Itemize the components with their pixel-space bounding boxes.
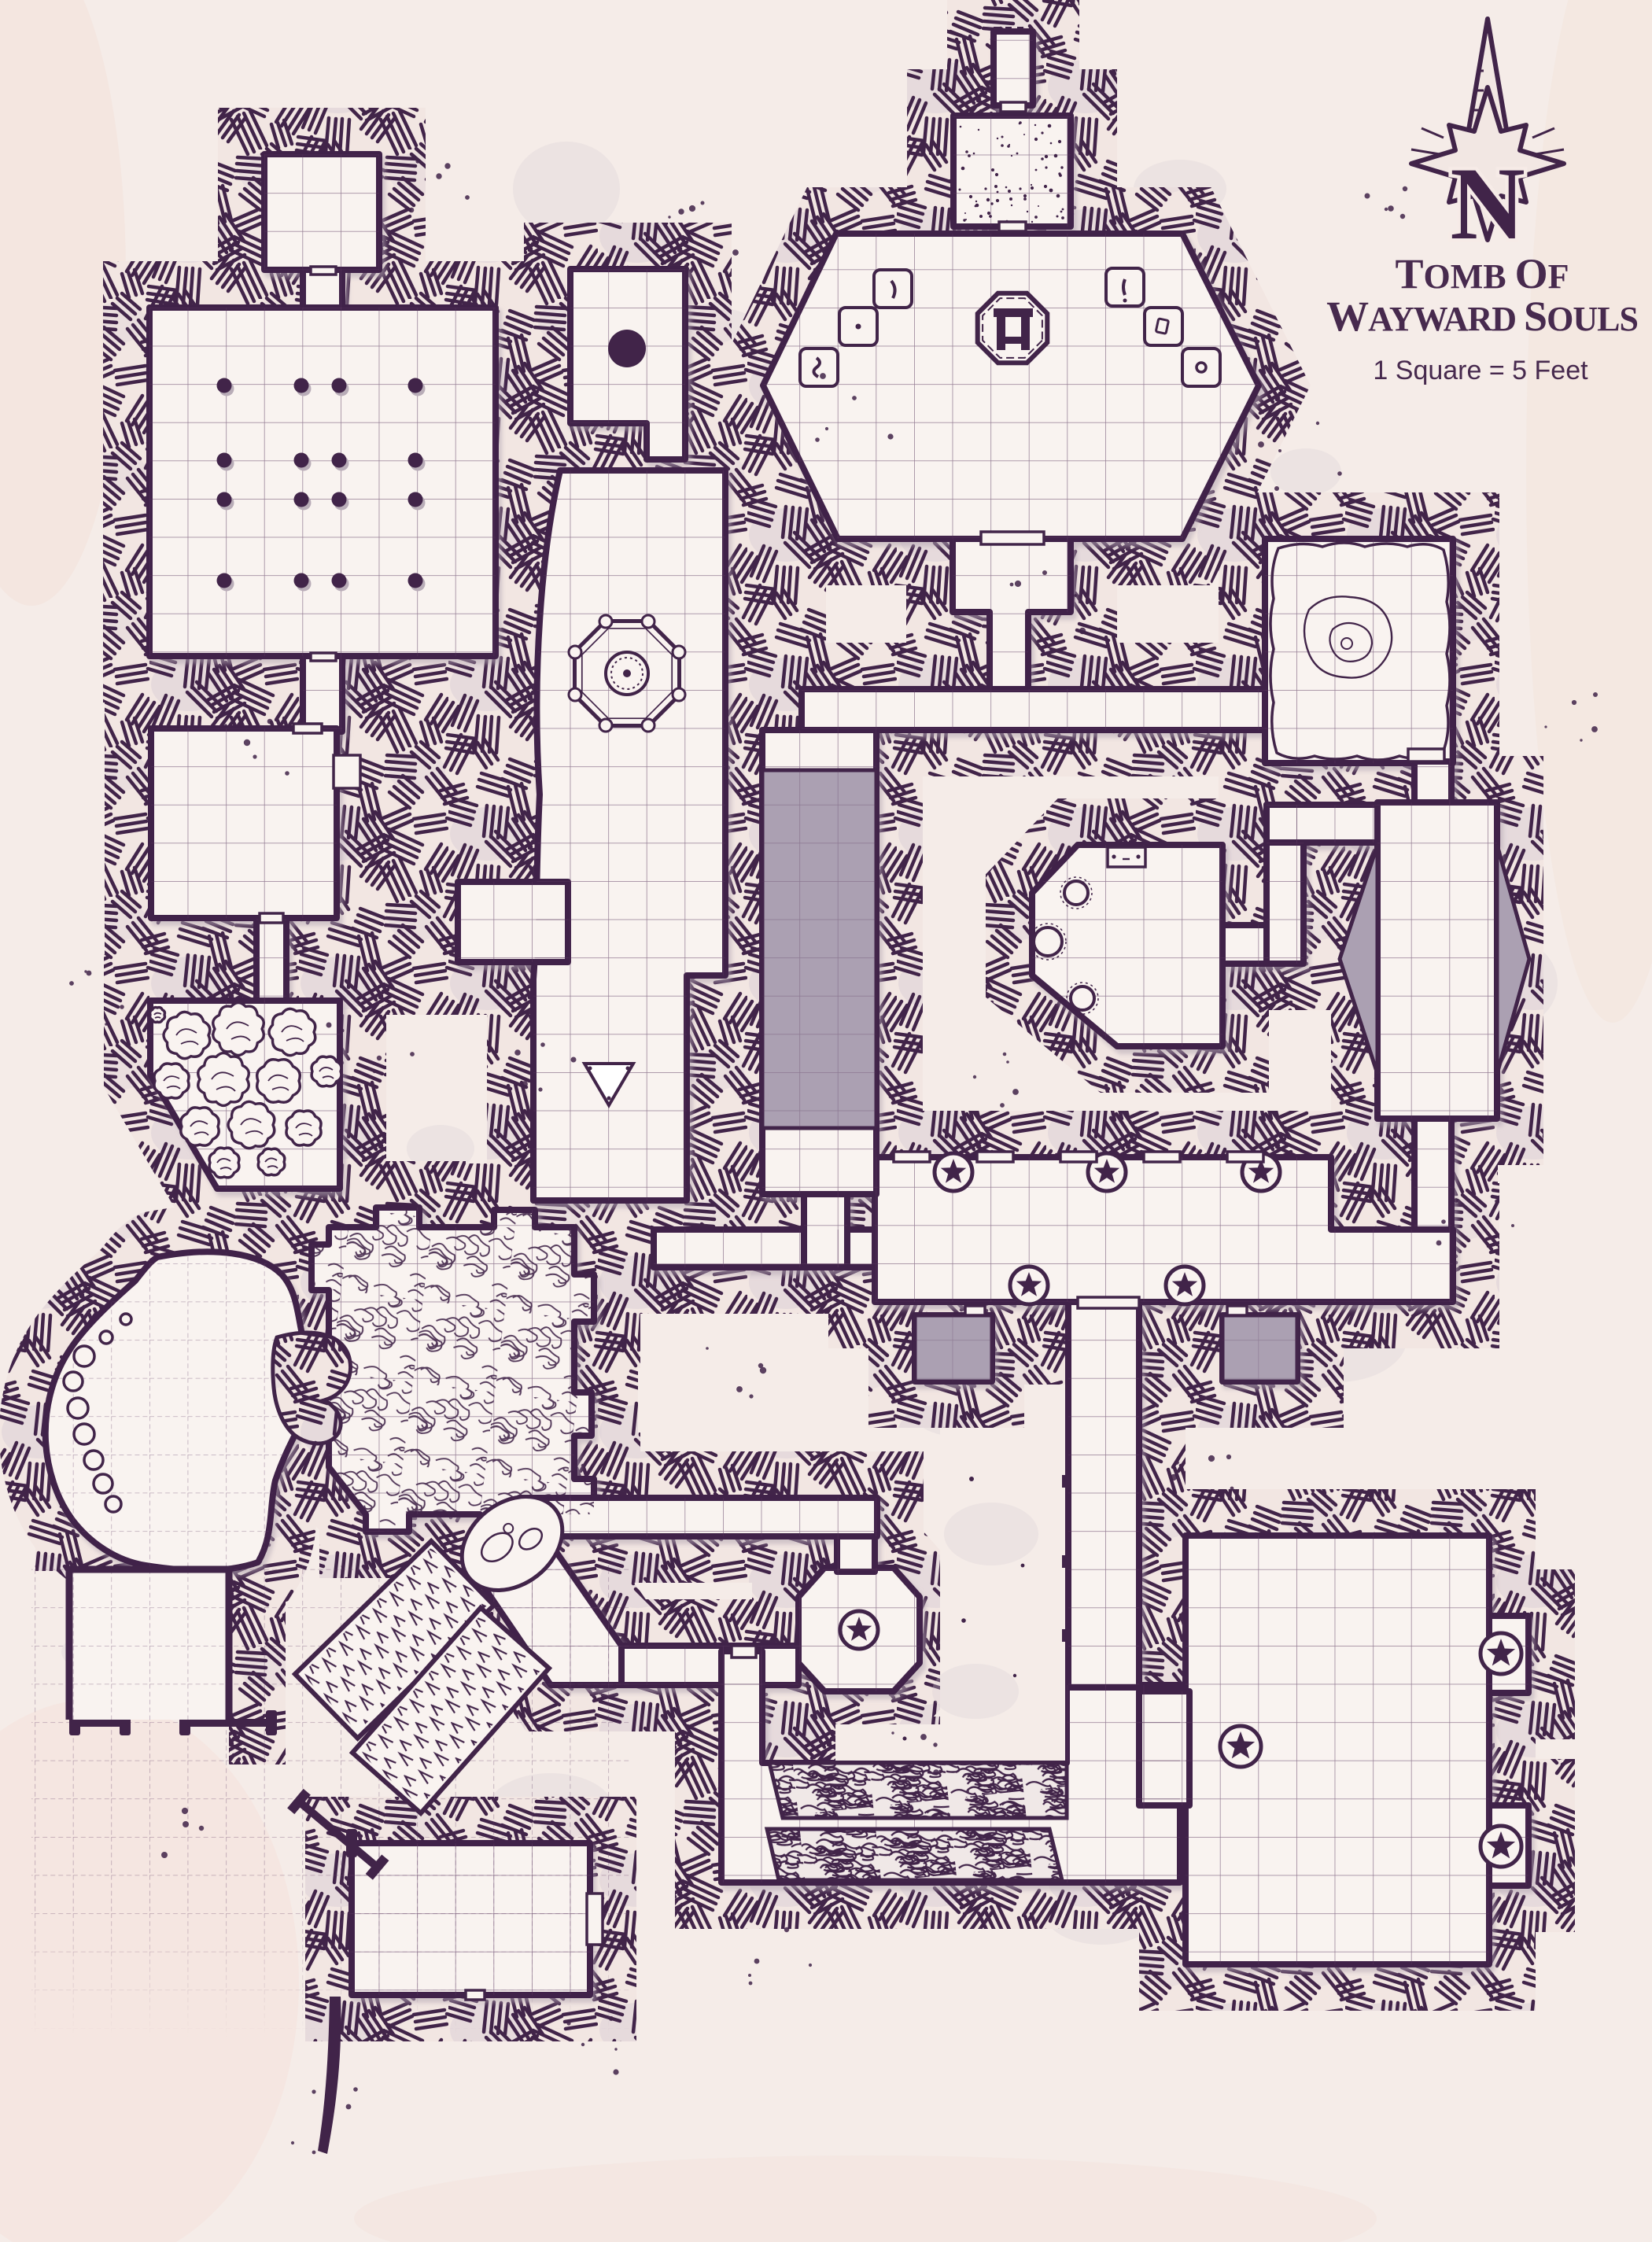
svg-text:TOMB OF: TOMB OF xyxy=(1395,250,1569,297)
svg-text:WAYWARD SOULS: WAYWARD SOULS xyxy=(1326,293,1638,340)
svg-text:1 Square = 5 Feet: 1 Square = 5 Feet xyxy=(1373,356,1588,385)
svg-text:N: N xyxy=(1450,146,1525,261)
